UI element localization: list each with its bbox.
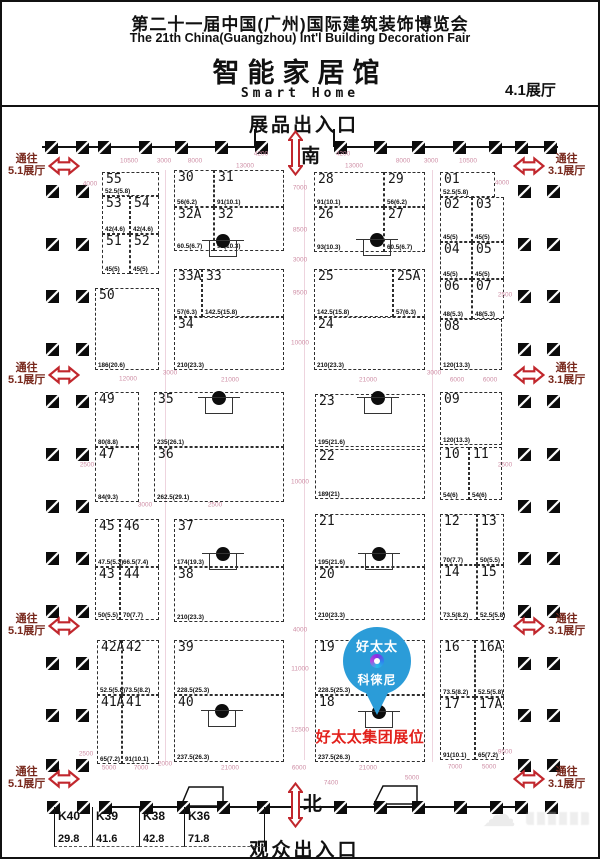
booth-52: 5245(5) [130,234,159,274]
booth-11: 1154(6) [469,447,502,500]
pillar-icon [489,141,502,154]
pillar-icon [412,801,425,814]
booth-area: 186(20.6) [98,363,125,369]
aisle-guideline [432,170,433,762]
pillar-icon [76,500,89,513]
pillar-icon [547,448,560,461]
double-arrow-icon [48,769,80,789]
booth-number: 30 [178,171,194,185]
pillar-icon [518,343,531,356]
dimension-label: 3000 [138,502,152,508]
pillar-icon [515,141,528,154]
booth-number: 12 [444,515,460,529]
pillar-icon [518,185,531,198]
booth-number: 45 [99,520,115,534]
booth-28: 2891(10.1) [314,172,384,207]
pillar-icon [518,552,531,565]
dimension-label: 3000 [157,158,171,164]
gate-to-hall-3-1: 通往3.1展厅 [513,154,585,177]
pin-brand-top: 好太太 [343,636,411,655]
booth-number: 08 [444,320,460,334]
pillar-icon [518,500,531,513]
dimension-label: 2000 [158,761,172,767]
booth-area: 54(6) [472,493,487,499]
booth-53: 5342(4.6) [102,196,130,234]
kiosk-area: 71.8 [188,833,209,845]
dimension-label: 7000 [134,765,148,771]
pillar-icon [518,709,531,722]
booth-number: 38 [178,568,194,582]
booth-41: 4191(10.1) [122,695,159,764]
dimension-label: 4200 [254,151,268,157]
kiosk-number: K39 [96,809,118,823]
pillar-icon [46,448,59,461]
gate-label: 通往5.1展厅 [8,154,45,177]
booth-area: 52.5(5.8) [443,190,468,196]
dimension-label: 2500 [79,751,93,757]
booth-25: 25142.5(15.8) [314,269,393,317]
booth-area: 65(7.2) [100,757,120,763]
booth-number: 34 [178,318,194,332]
pin-brand-bottom: 科徕尼 [343,671,411,688]
booth-area: 48(5.3) [443,312,463,318]
booth-44: 4470(7.7) [120,567,159,620]
watermark: ☁ [482,798,516,832]
booth-08: 08120(13.3) [440,319,502,370]
pillar-icon [46,343,59,356]
booth-area: 45(5) [443,272,458,278]
pillar-icon [547,657,560,670]
booth-number: 46 [124,520,140,534]
booth-number: 49 [99,393,115,407]
booth-42A: 42A52.5(5.8) [97,640,122,695]
gate-label: 通往5.1展厅 [8,614,45,637]
booth-area: 210(23.3) [177,615,204,621]
dimension-label: 5000 [405,775,419,781]
gate-to-hall-3-1: 通往3.1展厅 [513,614,585,637]
gate-label: 通往5.1展厅 [8,767,45,790]
watermark-text-blur [526,812,590,825]
kiosk-K38: K3842.8 [139,807,184,847]
booth-number: 35 [158,393,174,407]
booth-number: 26 [318,208,334,222]
kiosk-K39: K3941.6 [92,807,139,847]
group-booth-label: 好太太集团展位 [312,726,428,747]
booth-area: 42(4.6) [105,227,125,233]
booth-area: 56(6.2) [177,200,197,206]
booth-area: 70(7.7) [123,613,143,619]
booth-33: 33142.5(15.8) [202,269,284,317]
brand-logo-icon [370,654,384,668]
booth-number: 14 [444,566,460,580]
column-marker [205,398,233,414]
booth-30: 3056(6.2) [174,170,214,207]
gate-to-hall-5-1: 通往5.1展厅 [8,767,80,790]
booth-02: 0245(5) [440,197,472,242]
booth-09: 09120(13.3) [440,392,502,445]
pillar-icon [46,238,59,251]
booth-area: 210(23.3) [318,613,345,619]
gate-to-hall-5-1: 通往5.1展厅 [8,614,80,637]
booth-25A: 25A57(6.3) [393,269,425,317]
booth-number: 20 [319,568,335,582]
dimension-label: 2500 [208,502,222,508]
dimension-label: 12500 [291,727,309,733]
booth-area: 73.5(8.2) [443,613,468,619]
kiosk-number: K38 [143,809,165,823]
booth-area: 42(4.6) [133,227,153,233]
pillar-icon [547,709,560,722]
pillar-icon [46,395,59,408]
dimension-label: 10500 [459,158,477,164]
dimension-label: 2500 [498,462,512,468]
booth-area: 262.5(29.1) [157,495,189,501]
booth-33A: 33A57(6.3) [174,269,202,317]
pillar-icon [76,290,89,303]
booth-15: 1552.5(5.8) [477,565,504,620]
column-marker [365,554,393,570]
booth-number: 03 [476,198,492,212]
pillar-icon [547,290,560,303]
booth-area: 174(19.3) [177,560,204,566]
dimension-label: 13000 [345,163,363,169]
dimension-label: 6000 [292,765,306,771]
booth-number: 32 [218,208,234,222]
booth-43: 4350(5.5) [95,567,120,620]
booth-number: 06 [444,280,460,294]
booth-area: 84(9.3) [98,495,118,501]
pillar-icon [334,801,347,814]
dimension-label: 8500 [293,227,307,233]
booth-number: 18 [319,696,335,710]
booth-area: 65(7.2) [478,753,498,759]
dimension-label: 21000 [221,765,239,771]
booth-area: 50(5.5) [98,613,118,619]
booth-area: 48(5.3) [475,312,495,318]
booth-number: 39 [178,641,194,655]
pillar-icon [518,448,531,461]
dimension-label: 5000 [482,764,496,770]
dimension-label: 2500 [80,462,94,468]
gate-to-hall-3-1: 通往3.1展厅 [513,363,585,386]
booth-area: 50(5.5) [480,558,500,564]
pillar-icon [215,141,228,154]
dimension-label: 8000 [396,158,410,164]
booth-50: 50186(20.6) [95,288,159,370]
dimension-label: 12000 [119,376,137,382]
column-marker [363,240,391,256]
dimension-label: 5000 [102,765,116,771]
kiosk-K40: K4029.8 [54,807,92,847]
dimension-label: 4200 [336,151,350,157]
pillar-icon [45,141,58,154]
booth-number: 11 [473,448,489,462]
dimension-label: 9500 [498,749,512,755]
booth-area: 60.5(6.7) [177,244,202,250]
booth-area: 73.5(8.2) [125,688,150,694]
booth-31: 3191(10.1) [214,170,284,207]
booth-area: 57(6.3) [396,310,416,316]
pillar-icon [547,552,560,565]
booth-number: 23 [319,395,335,409]
dimension-label: 10500 [120,158,138,164]
booth-number: 17A [479,698,502,712]
booth-area: 142.5(15.8) [317,310,349,316]
booth-area: 45(5) [133,267,148,273]
gate-label: 通往3.1展厅 [548,363,585,386]
dimension-label: 3000 [293,257,307,263]
column-marker [209,554,237,570]
pillar-icon [518,238,531,251]
booth-number: 27 [388,208,404,222]
booth-number: 09 [444,393,460,407]
booth-36: 36262.5(29.1) [154,447,284,502]
booth-38: 38210(23.3) [174,567,284,622]
pillar-icon [76,448,89,461]
booth-number: 22 [319,450,335,464]
booth-number: 50 [99,289,115,303]
booth-area: 54(6) [443,493,458,499]
double-arrow-icon [513,769,545,789]
pillar-icon [374,801,387,814]
booth-number: 01 [444,173,460,187]
booth-area: 66.5(7.4) [123,560,148,566]
booth-area: 93(10.3) [317,245,340,251]
booth-area: 228.5(25.3) [177,688,209,694]
cloud-icon: ☁ [482,798,516,832]
booth-20: 20210(23.3) [315,567,425,620]
pillar-icon [76,657,89,670]
booth-46: 4666.5(7.4) [120,519,159,567]
gate-to-hall-5-1: 通往5.1展厅 [8,363,80,386]
booth-06: 0648(5.3) [440,279,472,319]
booth-number: 13 [481,515,497,529]
booth-number: 41A [101,696,124,710]
dimension-label: 4000 [495,180,509,186]
booth-number: 44 [124,568,140,582]
gate-label: 通往5.1展厅 [8,363,45,386]
booth-area: 189(21) [318,492,340,498]
booth-area: 45(5) [105,267,120,273]
pillar-icon [518,395,531,408]
booth-32A: 32A60.5(6.7) [174,207,214,251]
booth-area: 70(7.7) [443,558,463,564]
booth-number: 55 [106,173,122,187]
gate-label: 通往3.1展厅 [548,614,585,637]
dimension-label: 7000 [293,185,307,191]
booth-42: 4273.5(8.2) [122,640,159,695]
gate-label: 通往3.1展厅 [548,767,585,790]
pillar-icon [139,141,152,154]
booth-area: 235(26.1) [157,440,184,446]
gate-label: 通往3.1展厅 [548,154,585,177]
pillar-icon [46,290,59,303]
booth-area: 195(21.6) [318,440,345,446]
kiosk-area: 29.8 [58,833,79,845]
aisle-guideline [304,180,305,760]
booth-number: 28 [318,173,334,187]
pillar-icon [76,238,89,251]
double-arrow-icon [48,616,80,636]
booth-03: 0345(5) [472,197,504,242]
booth-area: 56(6.2) [387,200,407,206]
booth-17: 1791(10.1) [440,697,475,760]
booth-05: 0545(5) [472,242,504,279]
booth-number: 16A [479,641,502,655]
booth-14: 1473.5(8.2) [440,565,477,620]
gate-to-hall-5-1: 通往5.1展厅 [8,154,80,177]
booth-number: 31 [218,171,234,185]
booth-number: 33 [206,270,222,284]
dimension-label: 4000 [293,627,307,633]
booth-51: 5145(5) [102,234,130,274]
dimension-label: 6000 [450,377,464,383]
booth-area: 52.5(5.8) [480,613,505,619]
booth-area: 120(13.3) [443,438,470,444]
pillar-icon [76,343,89,356]
booth-number: 41 [126,696,142,710]
pillar-icon [547,395,560,408]
booth-55: 5552.5(5.8) [102,172,159,196]
booth-number: 02 [444,198,460,212]
booth-area: 45(5) [475,272,490,278]
booth-number: 32A [178,208,201,222]
booth-number: 07 [476,280,492,294]
booth-number: 25 [318,270,334,284]
pillar-icon [175,141,188,154]
pillar-icon [46,185,59,198]
booth-number: 33A [178,270,201,284]
double-arrow-icon [513,156,545,176]
kiosk-number: K36 [188,809,210,823]
booth-number: 19 [319,641,335,655]
booth-16: 1673.5(8.2) [440,640,475,697]
booth-number: 40 [178,696,194,710]
booth-number: 25A [397,270,420,284]
booth-54: 5442(4.6) [130,196,159,234]
floorplan-page: 第二十一届中国(广州)国际建筑装饰博览会 The 21th China(Guan… [0,0,600,859]
column-marker [208,711,236,727]
dimension-label: 21000 [221,377,239,383]
booth-24: 24210(23.3) [314,317,425,370]
booth-number: 47 [99,448,115,462]
booth-area: 91(10.1) [443,753,466,759]
dimension-label: 6000 [483,377,497,383]
booth-number: 43 [99,568,115,582]
booth-number: 36 [158,448,174,462]
location-pin: 好太太 科徕尼 [343,627,411,717]
booth-area: 210(23.3) [317,363,344,369]
booth-22: 22189(21) [315,449,425,499]
booth-area: 195(21.6) [318,560,345,566]
booth-39: 39228.5(25.3) [174,640,284,695]
booth-area: 45(5) [475,235,490,241]
booth-number: 53 [106,197,122,211]
booth-area: 142.5(15.8) [205,310,237,316]
pillar-icon [46,657,59,670]
dimension-label: 10000 [291,479,309,485]
kiosk-number: K40 [58,809,80,823]
booth-45: 4547.5(5.3) [95,519,120,567]
booth-29: 2956(6.2) [384,172,425,207]
dimension-label: 3000 [163,370,177,376]
double-arrow-icon [513,365,545,385]
booth-area: 57(6.3) [177,310,197,316]
booth-area: 52.5(5.8) [478,690,503,696]
column-marker [209,241,237,257]
dimension-label: 3000 [424,158,438,164]
dimension-label: 2500 [498,292,512,298]
booth-number: 16 [444,641,460,655]
dimension-label: 21000 [359,765,377,771]
pillar-icon [76,141,89,154]
booth-area: 52.5(5.8) [105,189,130,195]
booth-area: 73.5(8.2) [443,690,468,696]
booth-10: 1054(6) [440,447,469,500]
booth-area: 91(10.1) [125,757,148,763]
pillar-icon [46,552,59,565]
booth-number: 37 [178,520,194,534]
dimension-label: 7400 [324,780,338,786]
dimension-label: 13000 [236,163,254,169]
booth-area: 91(10.1) [217,200,240,206]
pillar-icon [453,141,466,154]
booth-number: 10 [444,448,460,462]
booth-13: 1350(5.5) [477,514,504,565]
booth-number: 15 [481,566,497,580]
pillar-icon [547,500,560,513]
booth-04: 0445(5) [440,242,472,279]
dimension-label: 7000 [448,764,462,770]
booth-number: 29 [388,173,404,187]
dimension-label: 8000 [188,158,202,164]
dimension-label: 4000 [83,181,97,187]
pillar-icon [547,343,560,356]
booth-47: 4784(9.3) [95,447,139,502]
booth-area: 237.5(26.3) [318,755,350,761]
booth-area: 210(23.3) [177,363,204,369]
pillar-icon [374,141,387,154]
pillar-icon [547,185,560,198]
booth-16A: 16A52.5(5.8) [475,640,504,697]
pillar-icon [518,290,531,303]
double-arrow-icon [513,616,545,636]
booth-number: 54 [134,197,150,211]
booth-number: 05 [476,243,492,257]
pillar-icon [98,141,111,154]
booth-area: 91(10.1) [317,200,340,206]
dimension-label: 3000 [427,370,441,376]
booth-number: 51 [106,235,122,249]
kiosk-K36: K3671.8 [184,807,265,847]
booth-area: 237.5(26.3) [177,755,209,761]
booth-number: 42A [101,641,124,655]
double-arrow-icon [48,156,80,176]
pillar-icon [46,500,59,513]
dimension-label: 10000 [291,340,309,346]
booth-number: 04 [444,243,460,257]
kiosk-area: 42.8 [143,833,164,845]
booth-01: 0152.5(5.8) [440,172,495,197]
pillar-icon [76,395,89,408]
booth-area: 80(8.8) [98,440,118,446]
pillar-icon [412,141,425,154]
kiosk-area: 41.6 [96,833,117,845]
dimension-label: 11000 [291,666,308,672]
pillar-icon [46,709,59,722]
dimension-label: 9500 [293,290,307,296]
double-arrow-icon [48,365,80,385]
